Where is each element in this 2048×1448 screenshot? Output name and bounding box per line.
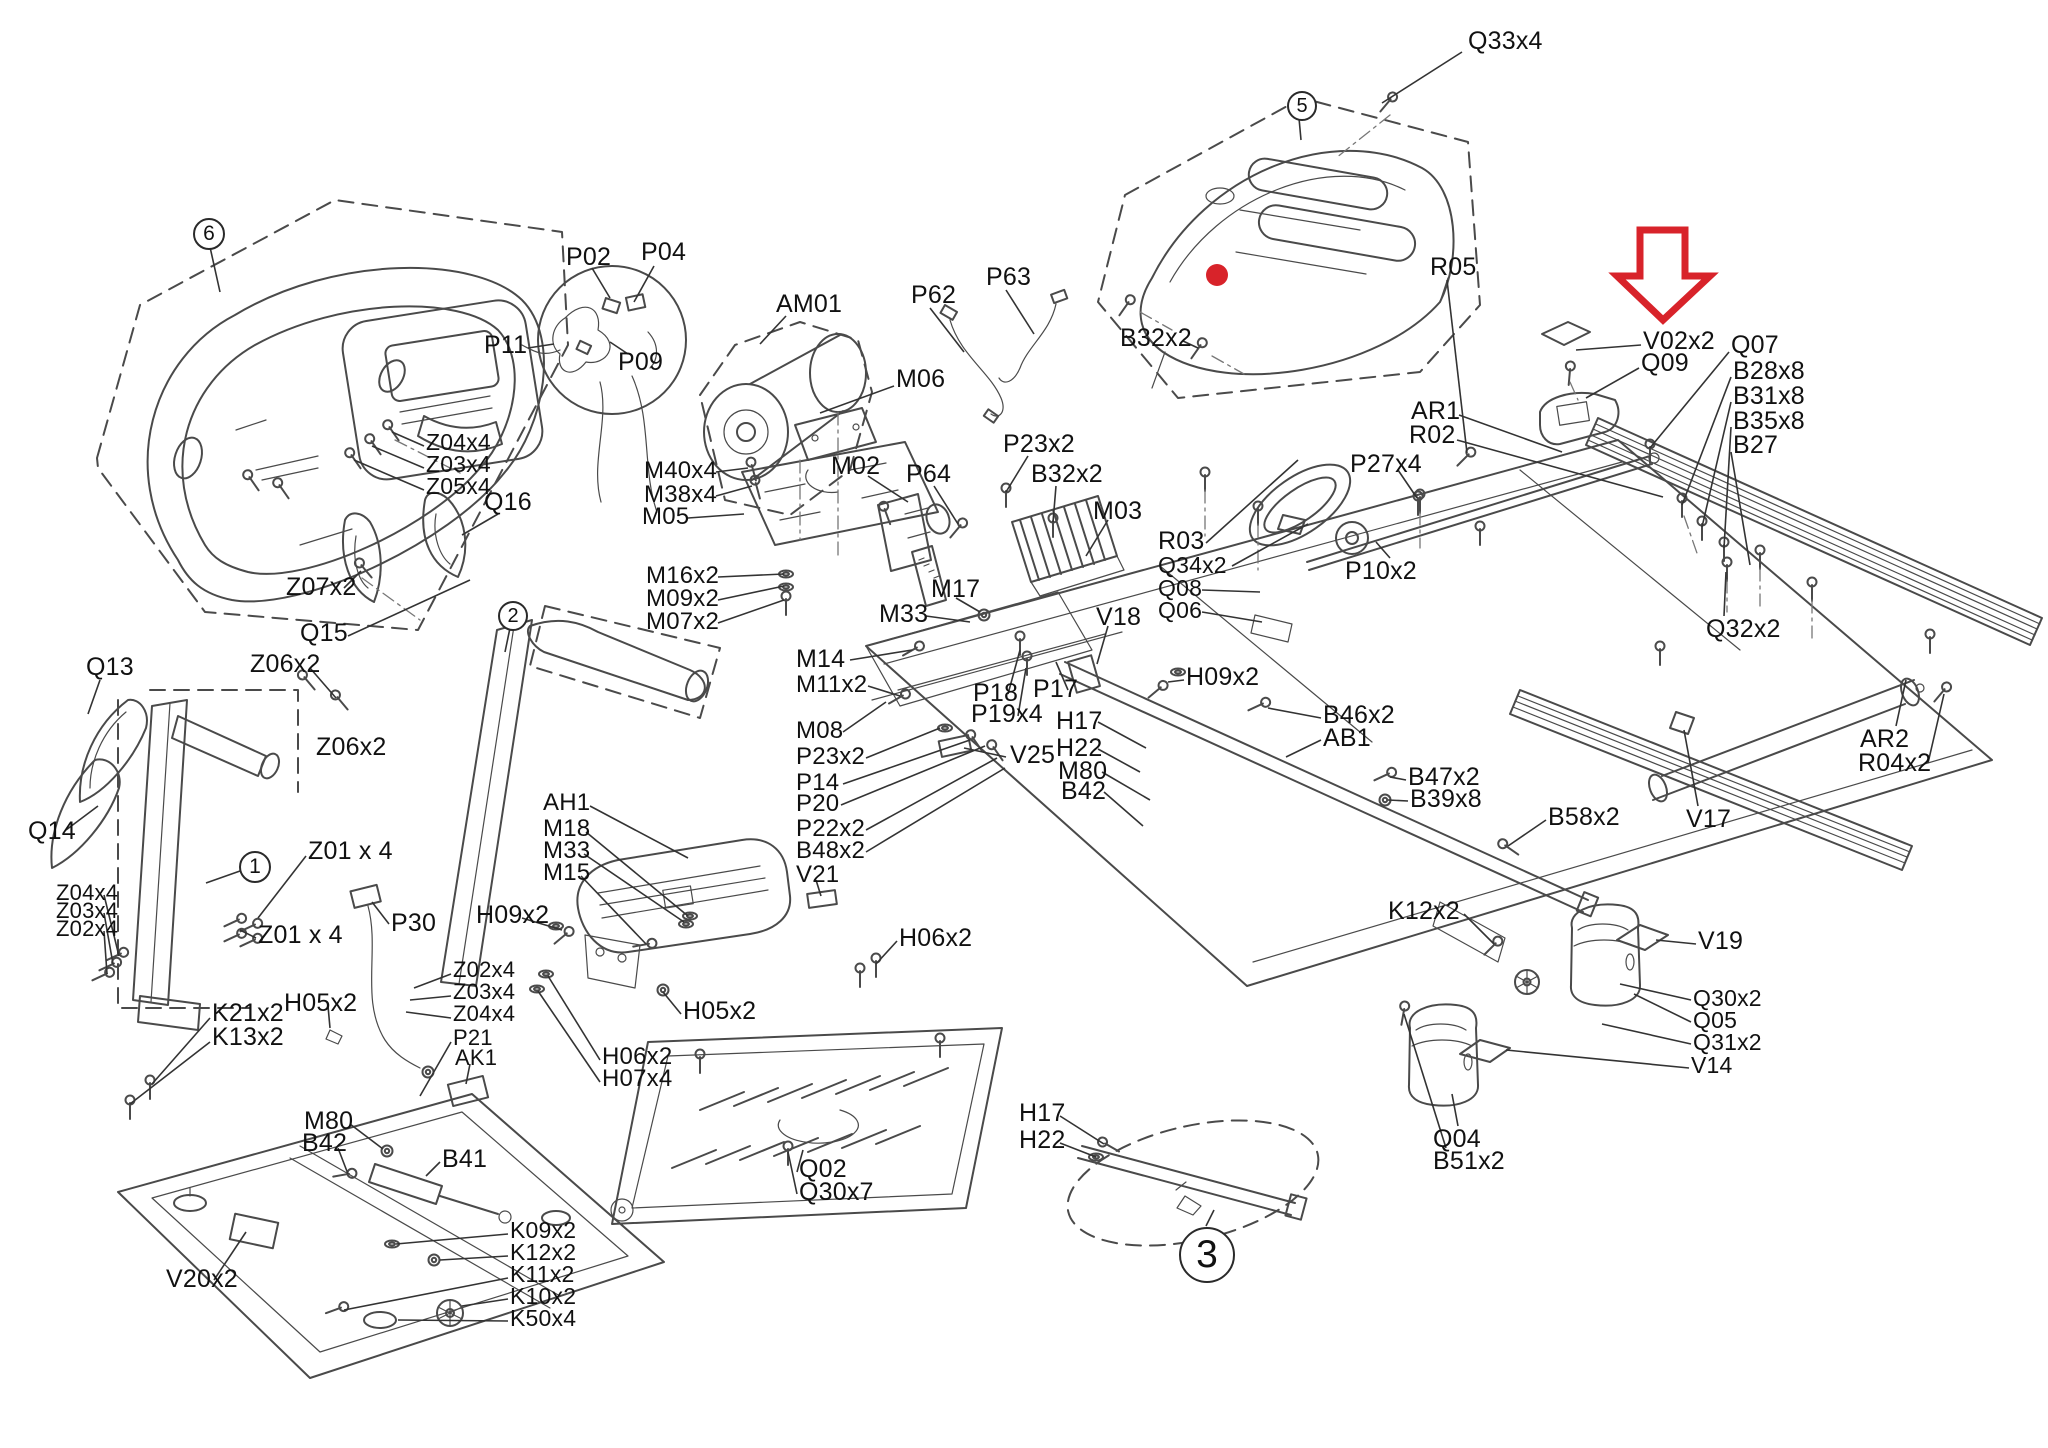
part-label-v25: V25 bbox=[1010, 744, 1055, 768]
part-label-b42: B42 bbox=[1061, 780, 1106, 804]
part-label-h17: H17 bbox=[1019, 1102, 1065, 1126]
part-label-m17: M17 bbox=[931, 578, 980, 602]
part-label-b32x2: B32x2 bbox=[1031, 463, 1103, 487]
balloon-number-2: 2 bbox=[498, 601, 528, 631]
part-label-r05: R05 bbox=[1430, 256, 1476, 280]
part-label-p63: P63 bbox=[986, 266, 1031, 290]
part-label-z04x4: Z04x4 bbox=[453, 1004, 515, 1025]
part-label-p20: P20 bbox=[796, 793, 839, 816]
part-label-q13: Q13 bbox=[86, 656, 134, 680]
part-label-m15: M15 bbox=[543, 862, 590, 885]
part-label-b39x8: B39x8 bbox=[1410, 788, 1482, 812]
part-label-k50x4: K50x4 bbox=[510, 1308, 576, 1330]
part-label-r04x2: R04x2 bbox=[1858, 752, 1931, 776]
part-label-q07: Q07 bbox=[1731, 334, 1779, 358]
part-label-m06: M06 bbox=[896, 368, 945, 392]
part-label-h07x4: H07x4 bbox=[602, 1068, 672, 1091]
part-label-q32x2: Q32x2 bbox=[1706, 618, 1781, 642]
part-label-m05: M05 bbox=[642, 506, 689, 529]
part-label-b28x8: B28x8 bbox=[1733, 360, 1805, 384]
part-label-v19: V19 bbox=[1698, 930, 1743, 954]
part-label-m14: M14 bbox=[796, 648, 845, 672]
part-label-p17: P17 bbox=[1033, 678, 1078, 702]
part-label-m11x2: M11x2 bbox=[796, 674, 867, 697]
part-label-q06: Q06 bbox=[1158, 600, 1202, 622]
part-label-z03x4: Z03x4 bbox=[453, 982, 515, 1003]
part-label-z07x2: Z07x2 bbox=[286, 576, 356, 600]
part-label-b51x2: B51x2 bbox=[1433, 1150, 1505, 1174]
part-label-q16: Q16 bbox=[484, 491, 532, 515]
part-label-q31x2: Q31x2 bbox=[1693, 1032, 1762, 1054]
part-label-p23x2: P23x2 bbox=[796, 746, 865, 769]
part-label-p04: P04 bbox=[641, 241, 686, 265]
part-label-q14: Q14 bbox=[28, 820, 76, 844]
balloon-number-6: 6 bbox=[193, 218, 225, 250]
part-label-q30x7: Q30x7 bbox=[799, 1181, 874, 1205]
part-label-p23x2: P23x2 bbox=[1003, 433, 1075, 457]
part-label-m03: M03 bbox=[1093, 500, 1142, 524]
parts-diagram-page: Q33x4V02x2Q09Q07B28x8B31x8B35x8B27B32x2R… bbox=[0, 0, 2048, 1448]
part-label-q09: Q09 bbox=[1641, 352, 1689, 376]
part-label-p09: P09 bbox=[618, 351, 663, 375]
part-label-h22: H22 bbox=[1019, 1129, 1065, 1153]
part-label-q33x4: Q33x4 bbox=[1468, 30, 1543, 54]
part-label-m07x2: M07x2 bbox=[646, 611, 719, 634]
part-label-z02x4: Z02x4 bbox=[56, 919, 118, 940]
part-label-z06x2: Z06x2 bbox=[250, 653, 320, 677]
part-label-h09x2: H09x2 bbox=[1186, 666, 1259, 690]
part-label-b42: B42 bbox=[302, 1132, 347, 1156]
part-label-z01x4: Z01 x 4 bbox=[258, 924, 343, 948]
part-label-b31x8: B31x8 bbox=[1733, 385, 1805, 409]
part-label-z06x2: Z06x2 bbox=[316, 736, 386, 760]
part-label-v20x2: V20x2 bbox=[166, 1268, 238, 1292]
part-label-m40x4: M40x4 bbox=[644, 460, 717, 483]
part-label-b48x2: B48x2 bbox=[796, 840, 865, 863]
balloon-number-1: 1 bbox=[239, 851, 271, 883]
part-label-p62: P62 bbox=[911, 284, 956, 308]
balloon-number-5: 5 bbox=[1287, 91, 1317, 121]
part-label-v17: V17 bbox=[1686, 808, 1731, 832]
part-label-p30: P30 bbox=[391, 912, 436, 936]
part-label-ah1: AH1 bbox=[543, 792, 590, 815]
part-label-p10x2: P10x2 bbox=[1345, 560, 1417, 584]
part-label-h06x2: H06x2 bbox=[899, 927, 972, 951]
part-label-am01: AM01 bbox=[776, 293, 842, 317]
part-label-q15: Q15 bbox=[300, 622, 348, 646]
part-labels: Q33x4V02x2Q09Q07B28x8B31x8B35x8B27B32x2R… bbox=[0, 0, 2048, 1448]
part-label-b32x2: B32x2 bbox=[1120, 327, 1192, 351]
part-label-ab1: AB1 bbox=[1323, 727, 1371, 751]
part-label-b58x2: B58x2 bbox=[1548, 806, 1620, 830]
part-label-m02: M02 bbox=[831, 455, 880, 479]
part-label-p11: P11 bbox=[484, 334, 527, 358]
part-label-v14: V14 bbox=[1691, 1055, 1733, 1077]
part-label-z05x4: Z05x4 bbox=[426, 476, 491, 498]
balloon-number-3: 3 bbox=[1179, 1227, 1235, 1283]
part-label-m33: M33 bbox=[879, 603, 928, 627]
part-label-r03: R03 bbox=[1158, 530, 1204, 554]
part-label-p27x4: P27x4 bbox=[1350, 453, 1422, 477]
part-label-z02x4: Z02x4 bbox=[453, 960, 515, 981]
part-label-p64: P64 bbox=[906, 463, 951, 487]
part-label-h05x2: H05x2 bbox=[284, 992, 357, 1016]
part-label-v21: V21 bbox=[796, 864, 839, 887]
part-label-m08: M08 bbox=[796, 720, 843, 743]
part-label-h05x2: H05x2 bbox=[683, 1000, 756, 1024]
part-label-v18: V18 bbox=[1096, 606, 1141, 630]
part-label-h17: H17 bbox=[1056, 710, 1102, 734]
part-label-p19x4: P19x4 bbox=[971, 703, 1043, 727]
part-label-ak1: AK1 bbox=[455, 1048, 497, 1069]
part-label-q34x2: Q34x2 bbox=[1158, 555, 1227, 577]
part-label-h09x2: H09x2 bbox=[476, 904, 549, 928]
part-label-p02: P02 bbox=[566, 246, 611, 270]
part-label-b27: B27 bbox=[1733, 434, 1778, 458]
part-label-r02: R02 bbox=[1409, 424, 1455, 448]
part-label-b41: B41 bbox=[442, 1148, 487, 1172]
part-label-k12x2: K12x2 bbox=[1388, 900, 1460, 924]
part-label-z01x4: Z01 x 4 bbox=[308, 840, 393, 864]
part-label-k13x2: K13x2 bbox=[212, 1026, 284, 1050]
